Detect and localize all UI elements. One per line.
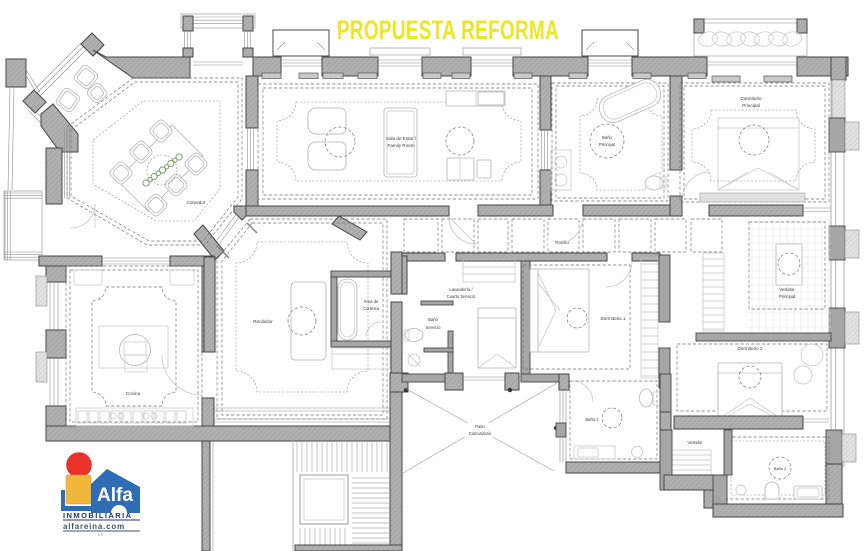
svg-text:Cortesía: Cortesía (363, 306, 379, 311)
svg-text:Cuarto Servicio: Cuarto Servicio (447, 294, 476, 299)
svg-text:Principal: Principal (742, 103, 760, 108)
svg-text:Alfa: Alfa (97, 485, 133, 506)
svg-text:PROPUESTA REFORMA: PROPUESTA REFORMA (337, 15, 559, 45)
svg-text:Comunitario: Comunitario (469, 431, 492, 436)
svg-text:Vestidor: Vestidor (687, 440, 703, 445)
svg-text:Lavandería /: Lavandería / (449, 287, 473, 292)
svg-text:Dormitorio 1: Dormitorio 1 (600, 316, 625, 321)
svg-text:Family Room: Family Room (387, 143, 414, 148)
svg-text:Vestidor: Vestidor (779, 287, 795, 292)
svg-text:INMOBILIARIA: INMOBILIARIA (63, 511, 133, 520)
svg-text:Cocina: Cocina (126, 391, 141, 396)
svg-text:Principal: Principal (779, 294, 795, 299)
svg-text:Baño 1: Baño 1 (585, 417, 599, 422)
svg-text:Sala de Estar /: Sala de Estar / (386, 136, 417, 141)
svg-text:Patio: Patio (475, 424, 485, 429)
svg-text:Dormitorio 2: Dormitorio 2 (737, 346, 762, 351)
svg-text:Área de: Área de (364, 299, 379, 304)
svg-text:Baño: Baño (602, 135, 612, 140)
svg-text:Dormitorio: Dormitorio (740, 96, 762, 101)
svg-text:Comedor: Comedor (187, 200, 206, 205)
svg-text:Principal: Principal (599, 142, 615, 147)
svg-text:Baño: Baño (428, 317, 438, 322)
svg-text:Baño 2: Baño 2 (774, 466, 787, 471)
svg-text:alfareina.com: alfareina.com (63, 522, 125, 531)
svg-text:Recibidor: Recibidor (253, 319, 273, 324)
svg-text:L C: L C (98, 533, 104, 537)
svg-text:Servicio: Servicio (426, 325, 442, 330)
